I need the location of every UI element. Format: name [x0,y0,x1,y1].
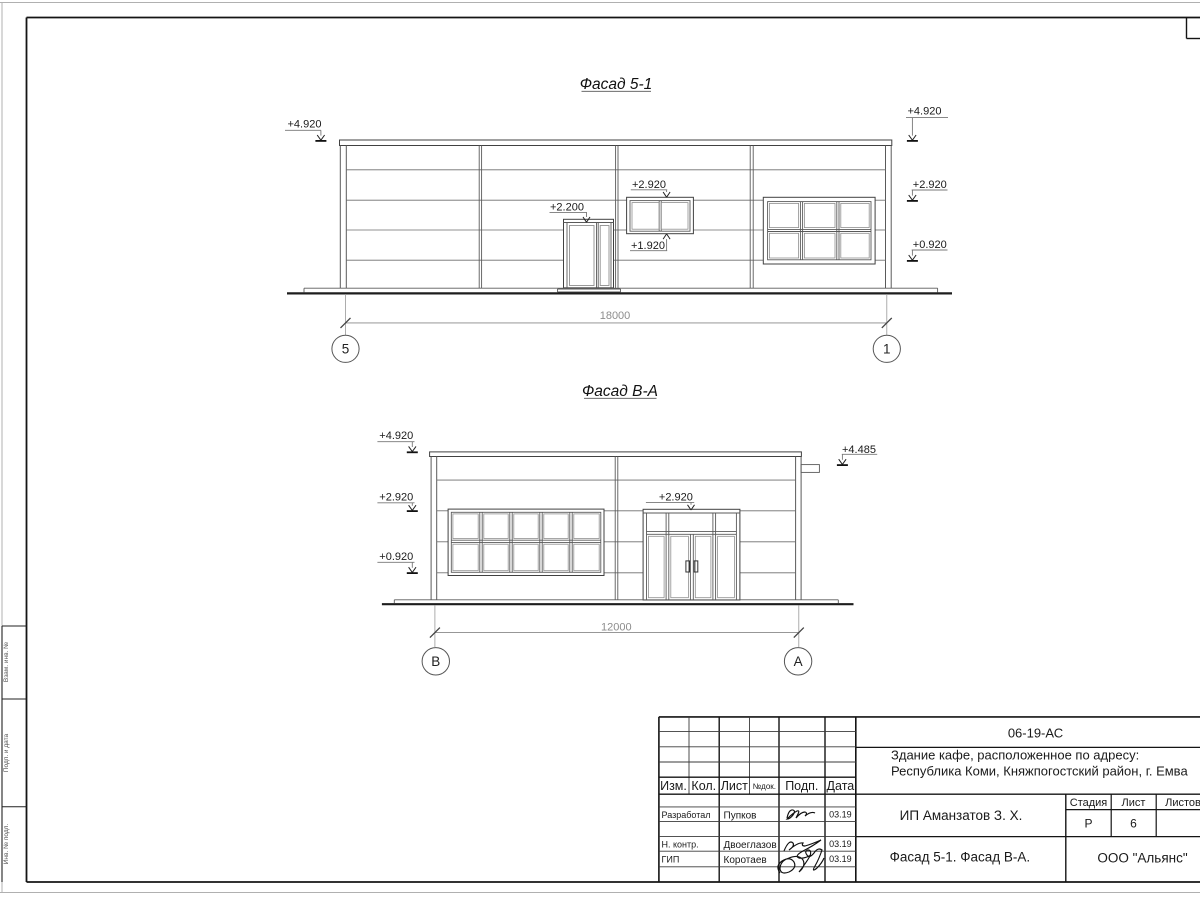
svg-text:+2.920: +2.920 [379,492,413,504]
svg-text:Фасад 5-1: Фасад 5-1 [580,76,653,93]
svg-text:+4.920: +4.920 [379,430,413,442]
svg-text:Подп. и дата: Подп. и дата [3,733,10,772]
svg-text:Листов: Листов [1165,797,1200,809]
svg-text:ГИП: ГИП [662,855,680,865]
svg-text:+2.920: +2.920 [913,179,947,191]
svg-text:+4.920: +4.920 [288,118,322,130]
svg-text:Фасад 5-1. Фасад В-А.: Фасад 5-1. Фасад В-А. [890,850,1031,865]
svg-text:Пупков: Пупков [724,811,757,822]
svg-text:ООО "Альянс": ООО "Альянс" [1097,851,1187,866]
svg-text:Взам. инв. №: Взам. инв. № [3,642,10,682]
svg-text:В: В [431,654,440,669]
svg-text:Двоеглазов: Двоеглазов [724,840,777,851]
svg-text:Р: Р [1084,817,1092,831]
svg-text:Лист: Лист [1122,797,1146,809]
svg-text:Инв. № подл.: Инв. № подл. [3,824,10,865]
svg-text:03.19: 03.19 [829,854,852,864]
svg-text:Изм.: Изм. [660,779,687,793]
svg-text:Стадия: Стадия [1070,797,1108,809]
svg-text:+2.920: +2.920 [659,491,693,503]
svg-text:№док.: №док. [753,782,776,791]
svg-text:Коротаев: Коротаев [724,855,767,866]
svg-text:+2.920: +2.920 [632,179,666,191]
svg-text:Разработал: Разработал [662,810,711,820]
svg-text:+2.200: +2.200 [550,201,584,213]
svg-text:Республика Коми, Княжпогостски: Республика Коми, Княжпогостский район, г… [891,764,1188,779]
svg-text:6: 6 [1130,817,1137,831]
svg-text:Кол.: Кол. [691,779,716,793]
svg-text:+4.920: +4.920 [908,105,942,117]
svg-text:+1.920: +1.920 [631,240,665,252]
svg-text:03.19: 03.19 [829,839,852,849]
svg-text:1: 1 [883,342,891,357]
svg-text:Дата: Дата [827,779,855,793]
svg-text:5: 5 [342,342,350,357]
svg-text:+0.920: +0.920 [379,551,413,563]
svg-text:Фасад В-А: Фасад В-А [582,383,658,400]
svg-text:18000: 18000 [600,310,631,322]
svg-text:Здание кафе, расположенное по: Здание кафе, расположенное по адресу: [891,748,1139,763]
svg-text:ИП Аманзатов З. Х.: ИП Аманзатов З. Х. [900,808,1023,823]
svg-text:Подп.: Подп. [785,779,818,793]
svg-text:А: А [794,654,803,669]
svg-text:Лист: Лист [721,779,748,793]
svg-text:12000: 12000 [601,622,632,634]
svg-text:Н. контр.: Н. контр. [662,840,699,850]
svg-text:+0.920: +0.920 [913,239,947,251]
svg-text:03.19: 03.19 [829,810,852,820]
svg-text:06-19-АС: 06-19-АС [1008,726,1063,741]
